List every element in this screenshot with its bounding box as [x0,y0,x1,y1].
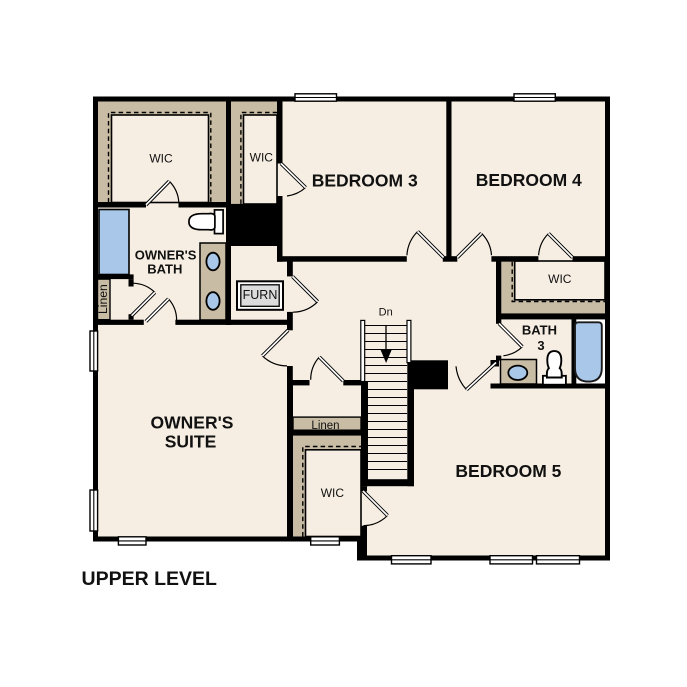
svg-text:SUITE: SUITE [165,431,217,451]
svg-text:Dn: Dn [379,307,393,319]
svg-text:OWNER'S: OWNER'S [135,247,197,262]
svg-text:Linen: Linen [311,420,339,432]
svg-text:BATH: BATH [147,261,182,276]
svg-text:BEDROOM 3: BEDROOM 3 [312,170,418,190]
svg-text:BATH: BATH [522,322,557,337]
svg-text:WIC: WIC [149,152,173,166]
svg-text:WIC: WIC [250,151,274,165]
svg-text:3: 3 [537,338,544,353]
svg-text:WIC: WIC [548,272,572,286]
svg-text:UPPER LEVEL: UPPER LEVEL [82,568,218,590]
svg-text:BEDROOM 4: BEDROOM 4 [476,170,582,190]
svg-text:WIC: WIC [321,486,345,500]
svg-text:FURN: FURN [243,288,278,302]
svg-text:BEDROOM 5: BEDROOM 5 [455,461,561,481]
svg-text:Linen: Linen [96,284,110,314]
svg-text:OWNER'S: OWNER'S [151,412,234,432]
